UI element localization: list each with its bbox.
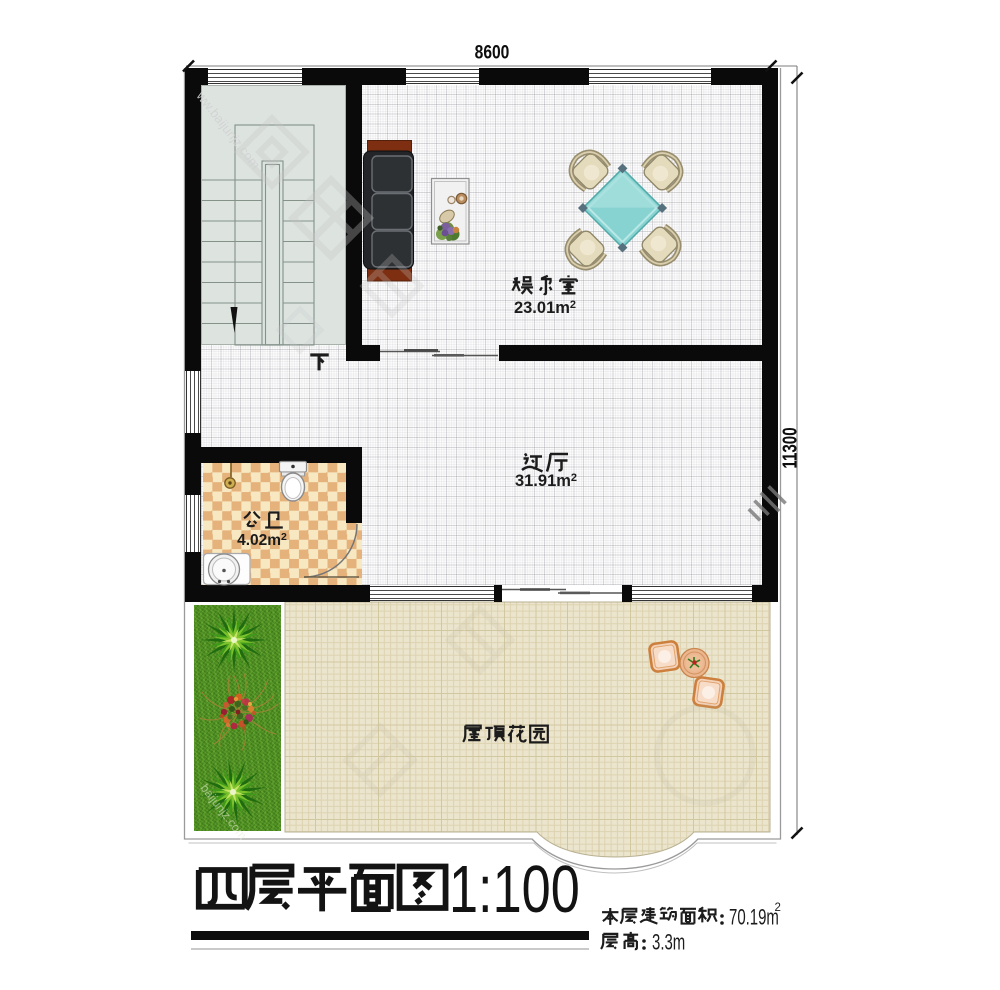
svg-text:4.02m2: 4.02m2 [237, 531, 287, 549]
svg-text:2: 2 [775, 902, 781, 914]
svg-text:3.3m: 3.3m [652, 930, 685, 955]
svg-text:23.01m2: 23.01m2 [514, 299, 576, 317]
svg-text:ww.baijunjz.com: ww.baijunjz.com [193, 88, 263, 172]
svg-text:8600: 8600 [475, 41, 510, 63]
svg-text:31.91m2: 31.91m2 [515, 472, 577, 490]
svg-text:70.19m: 70.19m [729, 905, 779, 930]
svg-text:1:100: 1:100 [449, 852, 580, 927]
svg-text:11300: 11300 [778, 427, 801, 468]
